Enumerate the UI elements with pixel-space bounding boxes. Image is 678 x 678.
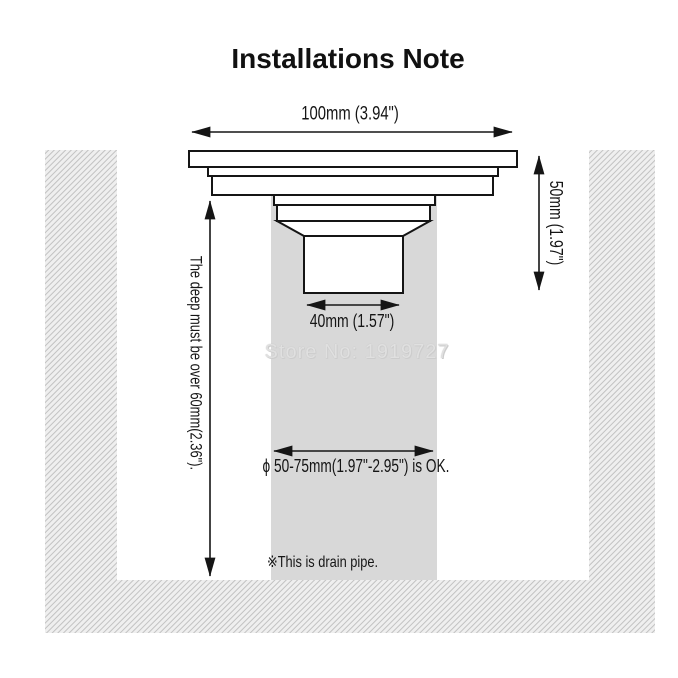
wall-left-hatch — [45, 150, 117, 580]
drain-body — [212, 176, 493, 195]
drain-installation-diagram — [0, 0, 678, 678]
floor-slab-hatch — [45, 580, 655, 633]
pipe-diameter-label: ϕ 50-75mm(1.97"-2.95") is OK. — [263, 457, 450, 475]
drain-flange-body — [277, 205, 430, 221]
wall-right-hatch — [589, 150, 655, 580]
outlet-width-dimension-label: 40mm (1.57") — [310, 312, 395, 330]
height-dimension-label: 50mm (1.97") — [547, 181, 565, 266]
drain-taper — [277, 221, 430, 236]
drain-outlet-stub — [304, 236, 403, 293]
drain-rim-lip — [208, 167, 498, 176]
width-dimension-label: 100mm (3.94") — [301, 105, 399, 124]
drain-pipe-note: ※This is drain pipe. — [267, 555, 378, 571]
floor-drain-fixture — [189, 151, 517, 293]
installation-note-page: Installations Note 100mm (3.94") 50mm (1… — [0, 0, 678, 678]
page-title: Installations Note — [231, 45, 464, 73]
store-watermark: Store No: 1919727 — [265, 342, 450, 362]
drain-flange-lip — [274, 195, 435, 205]
drain-cover-plate — [189, 151, 517, 167]
depth-requirement-label: The deep must be over 60mm(2.36"). — [188, 256, 205, 470]
